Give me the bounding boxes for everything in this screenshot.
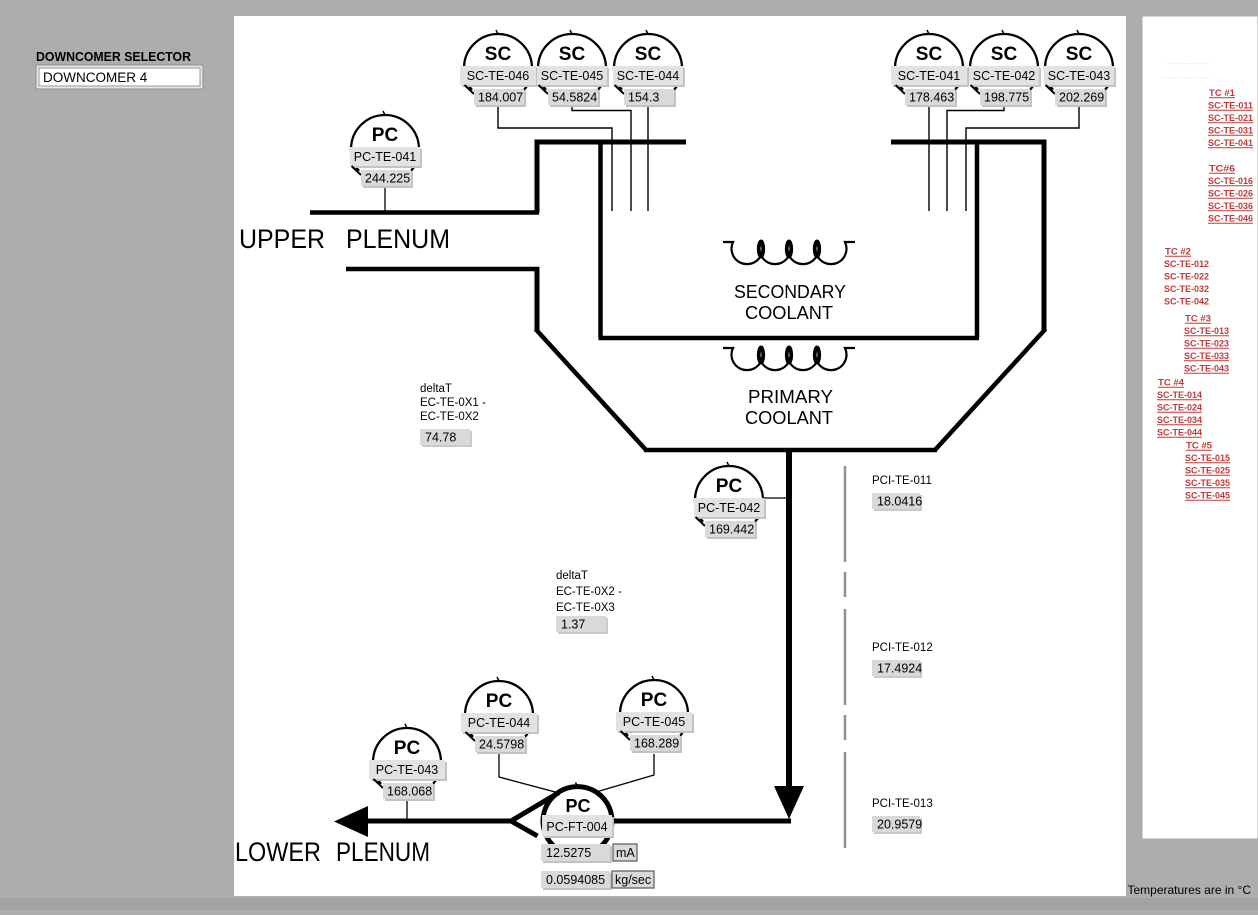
svg-text:PC: PC: [372, 125, 399, 146]
svg-text:PC: PC: [486, 691, 513, 712]
svg-text:-- --- -- --- -- ---: -- --- -- --- -- ---: [1160, 73, 1211, 82]
svg-text:SC: SC: [485, 44, 512, 65]
svg-text:20.9579: 20.9579: [877, 818, 922, 832]
svg-text:SC-TE-043: SC-TE-043: [1048, 69, 1111, 83]
svg-text:LOWER: LOWER: [235, 837, 321, 867]
svg-text:PC: PC: [565, 796, 590, 816]
svg-text:168.068: 168.068: [387, 785, 432, 799]
svg-text:SC: SC: [635, 44, 662, 65]
svg-text:SC: SC: [916, 44, 943, 65]
svg-text:mA: mA: [616, 846, 635, 860]
svg-text:--- -- ---- -- --: --- -- ---- -- --: [1166, 59, 1210, 68]
svg-text:SC-TE-022: SC-TE-022: [1164, 272, 1209, 283]
svg-text:EC-TE-0X2: EC-TE-0X2: [420, 411, 479, 423]
svg-text:PC-TE-042: PC-TE-042: [698, 501, 761, 515]
svg-text:0.0594085: 0.0594085: [546, 873, 605, 887]
svg-text:54.5824: 54.5824: [552, 91, 597, 105]
svg-text:SC-TE-012: SC-TE-012: [1164, 259, 1209, 270]
svg-text:12.5275: 12.5275: [546, 846, 591, 860]
svg-text:244.225: 244.225: [365, 172, 410, 186]
svg-text:PCI-TE-012: PCI-TE-012: [872, 642, 933, 654]
svg-text:DOWNCOMER 4: DOWNCOMER 4: [43, 70, 148, 85]
svg-text:SECONDARY: SECONDARY: [734, 282, 846, 302]
svg-text:74.78: 74.78: [425, 431, 456, 445]
svg-text:PLENUM: PLENUM: [336, 837, 430, 867]
svg-text:SC-TE-041: SC-TE-041: [898, 69, 961, 83]
svg-text:169.442: 169.442: [709, 523, 754, 537]
svg-text:PC-FT-004: PC-FT-004: [546, 820, 607, 834]
svg-text:168.289: 168.289: [634, 737, 679, 751]
svg-text:PCI-TE-013: PCI-TE-013: [872, 798, 933, 810]
svg-text:deltaT: deltaT: [420, 383, 452, 395]
svg-text:EC-TE-0X1 -: EC-TE-0X1 -: [420, 397, 486, 409]
svg-text:PLENUM: PLENUM: [346, 224, 450, 254]
svg-text:24.5798: 24.5798: [479, 738, 524, 752]
svg-text:COOLANT: COOLANT: [745, 303, 833, 323]
svg-text:COOLANT: COOLANT: [745, 408, 833, 428]
svg-text:Temperatures are in °C: Temperatures are in °C: [1127, 883, 1251, 897]
svg-text:SC: SC: [1066, 44, 1093, 65]
svg-text:SC-TE-032: SC-TE-032: [1164, 284, 1209, 295]
svg-text:184.007: 184.007: [478, 91, 523, 105]
svg-text:deltaT: deltaT: [556, 570, 588, 582]
svg-text:SC-TE-042: SC-TE-042: [973, 69, 1036, 83]
svg-text:SC-TE-045: SC-TE-045: [541, 69, 604, 83]
svg-text:PC-TE-045: PC-TE-045: [623, 715, 686, 729]
svg-text:198.775: 198.775: [984, 91, 1029, 105]
svg-text:PRIMARY: PRIMARY: [748, 387, 833, 407]
svg-text:UPPER: UPPER: [239, 224, 325, 254]
svg-text:17.4924: 17.4924: [877, 662, 922, 676]
svg-text:PC-TE-043: PC-TE-043: [376, 763, 439, 777]
svg-text:SC-TE-046: SC-TE-046: [467, 69, 530, 83]
svg-text:kg/sec: kg/sec: [615, 873, 651, 887]
svg-text:PC: PC: [716, 476, 743, 497]
svg-text:1.37: 1.37: [561, 618, 585, 632]
svg-text:SC: SC: [991, 44, 1018, 65]
svg-text:PCI-TE-011: PCI-TE-011: [872, 475, 932, 487]
svg-text:SC-TE-042: SC-TE-042: [1164, 297, 1209, 308]
svg-text:EC-TE-0X3: EC-TE-0X3: [556, 602, 615, 614]
svg-text:PC-TE-044: PC-TE-044: [468, 716, 531, 730]
svg-text:PC-TE-041: PC-TE-041: [354, 150, 417, 164]
svg-text:DOWNCOMER SELECTOR: DOWNCOMER SELECTOR: [36, 50, 191, 64]
svg-text:PC: PC: [641, 690, 668, 711]
svg-text:SC: SC: [559, 44, 586, 65]
svg-text:178.463: 178.463: [909, 91, 954, 105]
svg-text:202.269: 202.269: [1059, 91, 1104, 105]
svg-text:18.0416: 18.0416: [877, 495, 922, 509]
svg-text:PC: PC: [394, 738, 421, 759]
svg-text:SC-TE-044: SC-TE-044: [617, 69, 680, 83]
svg-text:154.3: 154.3: [628, 91, 659, 105]
svg-text:EC-TE-0X2 -: EC-TE-0X2 -: [556, 586, 622, 598]
